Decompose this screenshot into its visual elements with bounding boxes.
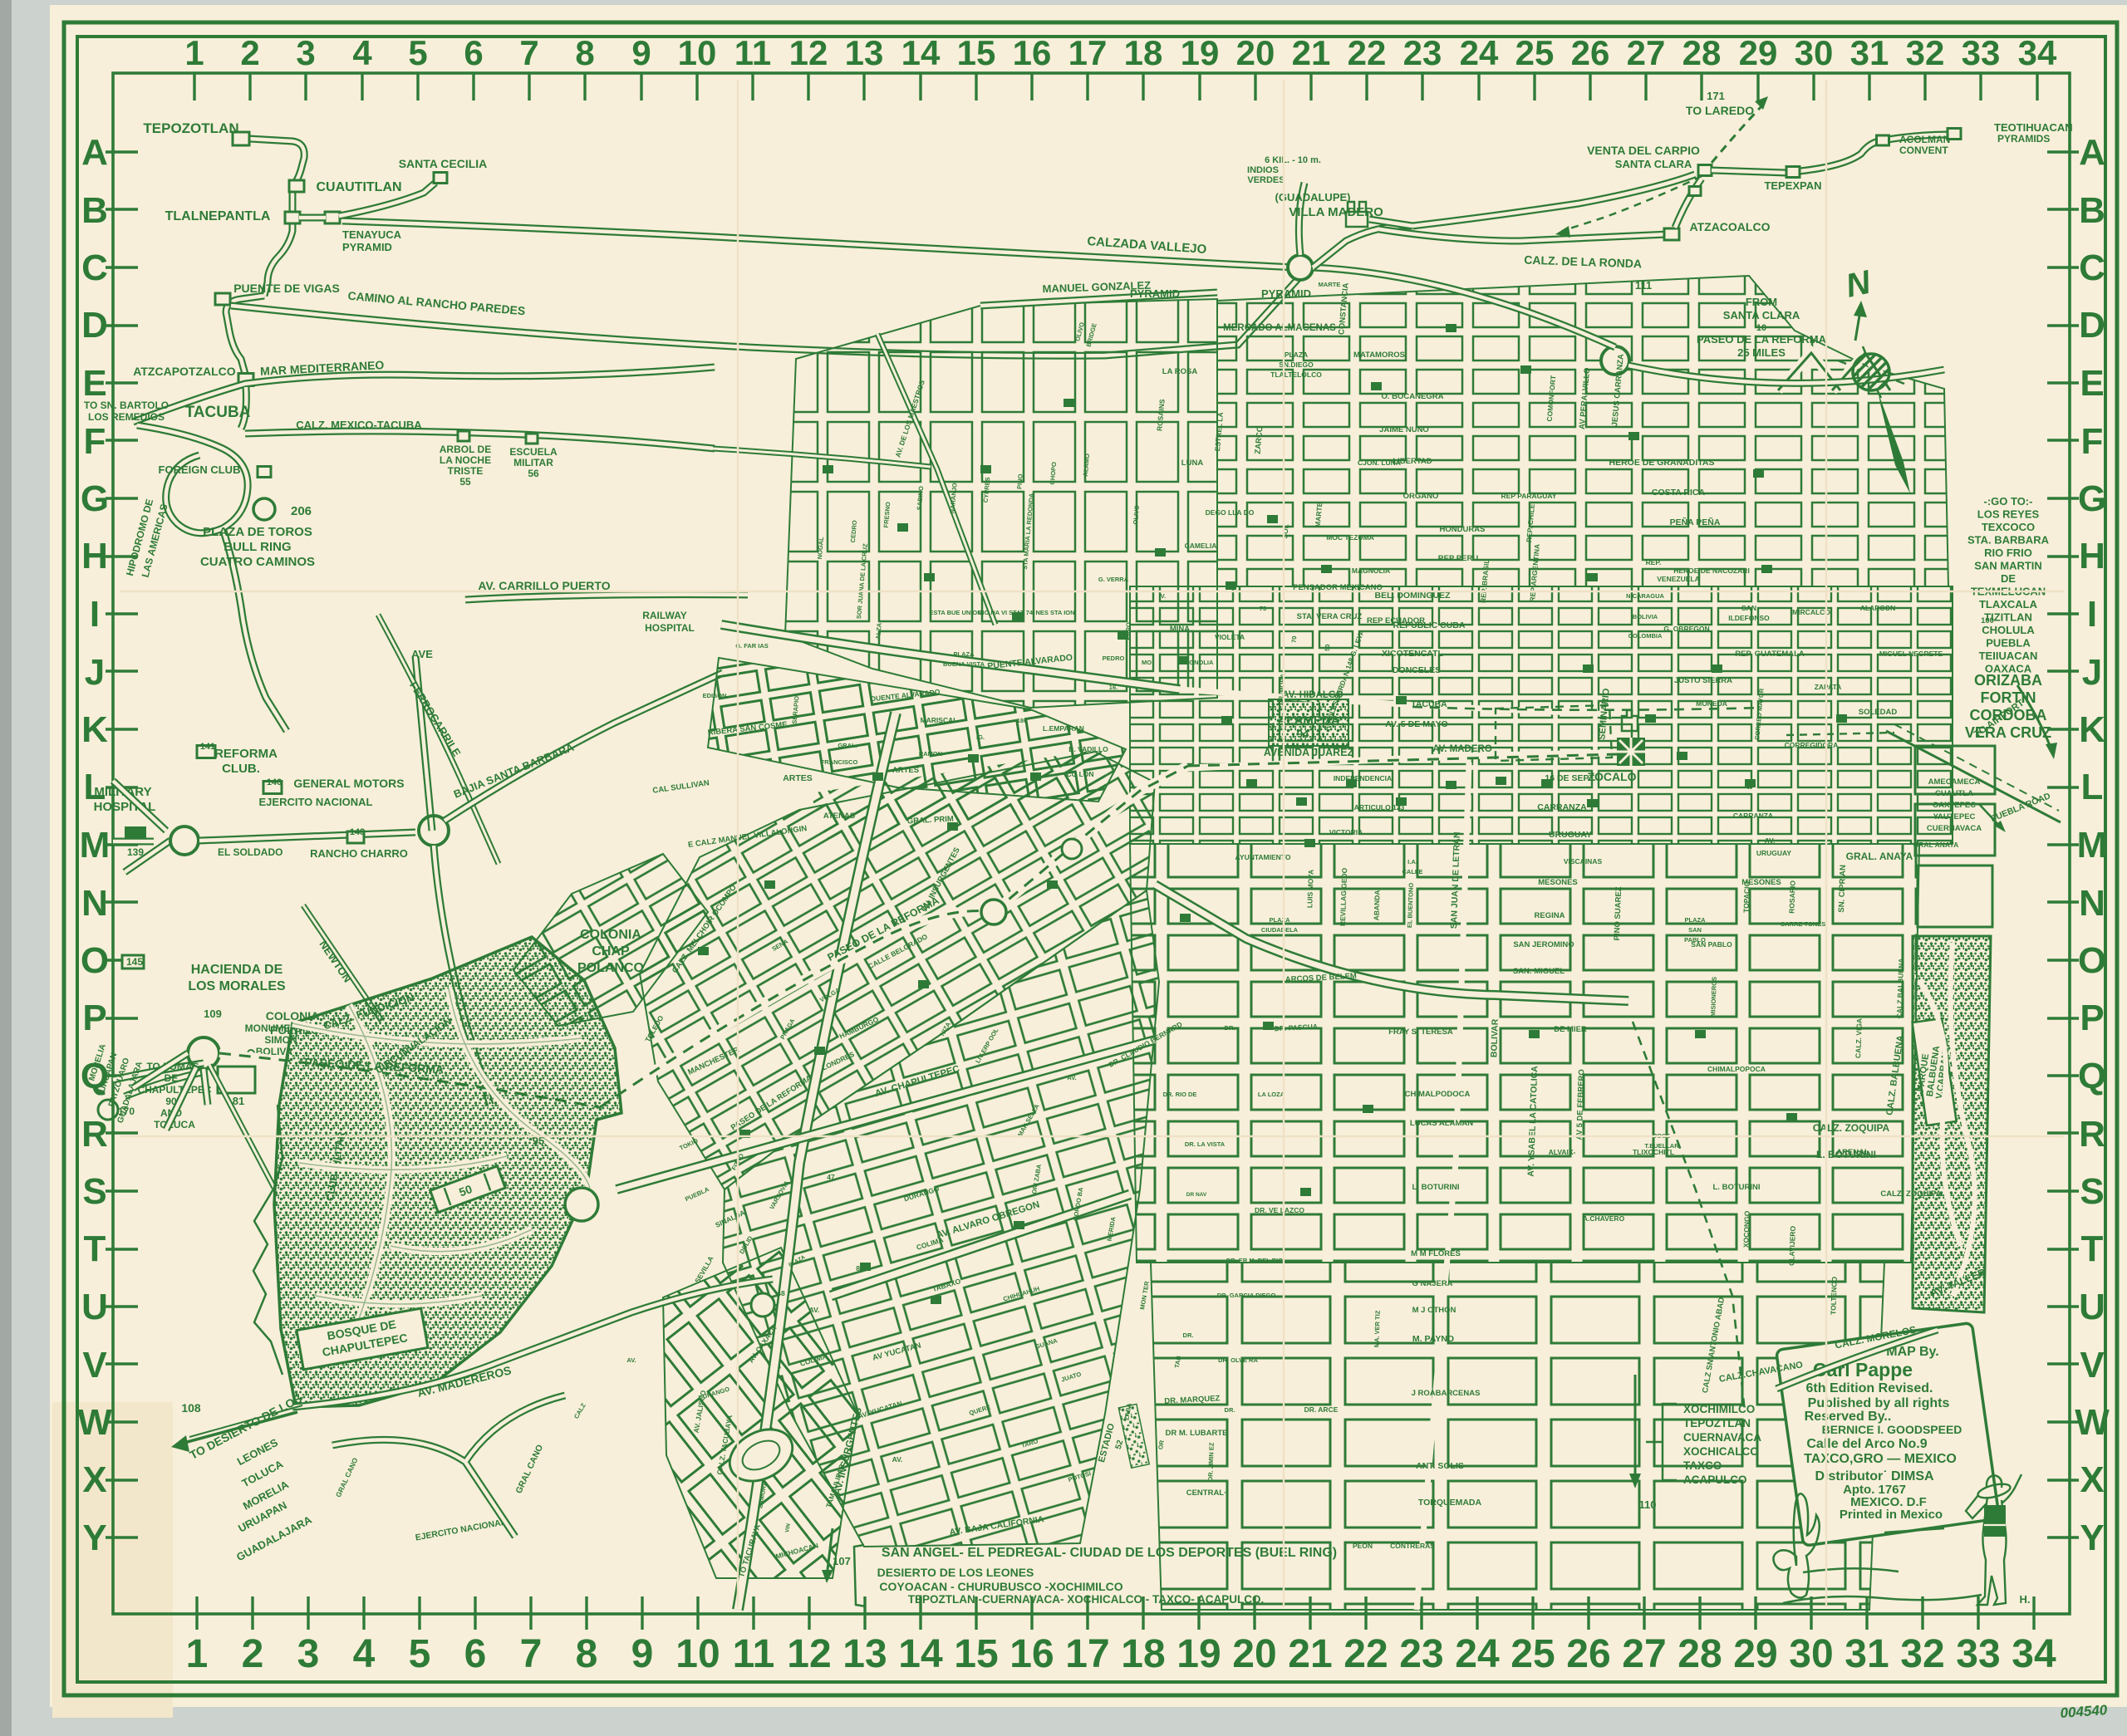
svg-text:30: 30: [1789, 1632, 1833, 1676]
svg-text:ACOLMAN: ACOLMAN: [1899, 134, 1950, 145]
svg-text:ORIZABA: ORIZABA: [1974, 672, 2042, 689]
svg-text:LOS REMEDIOS: LOS REMEDIOS: [88, 411, 165, 423]
svg-text:DR. JIMIN EZ: DR. JIMIN EZ: [1206, 1442, 1216, 1481]
svg-text:BUENA VISTA: BUENA VISTA: [943, 660, 985, 668]
svg-text:73: 73: [1260, 605, 1266, 612]
svg-text:26: 26: [1571, 33, 1610, 72]
svg-text:DR. ARCE: DR. ARCE: [1304, 1405, 1339, 1414]
svg-text:AV. 5 DE MAYO: AV. 5 DE MAYO: [1385, 719, 1447, 729]
svg-text:DE: DE: [165, 1072, 179, 1084]
svg-text:HACIENDA DE: HACIENDA DE: [191, 963, 283, 977]
svg-text:A: A: [2079, 132, 2105, 173]
svg-text:SANTA CLARA: SANTA CLARA: [1723, 309, 1800, 321]
svg-text:10: 10: [1756, 323, 1766, 333]
svg-text:PINO: PINO: [1015, 473, 1024, 489]
svg-text:CHAPULTEPEC: CHAPULTEPEC: [137, 1084, 211, 1096]
svg-text:CALZ. MEXICO-TACUBA: CALZ. MEXICO-TACUBA: [296, 419, 422, 431]
svg-text:HONDURAS: HONDURAS: [1440, 525, 1486, 534]
svg-text:ESCUELA: ESCUELA: [509, 446, 558, 458]
svg-text:108: 108: [181, 1401, 201, 1415]
svg-text:CARRANZA: CARRANZA: [1537, 802, 1587, 812]
svg-text:CARRE TONES: CARRE TONES: [1781, 920, 1825, 928]
svg-text:21: 21: [1292, 33, 1331, 72]
svg-text:CONTRERAS: CONTRERAS: [1390, 1542, 1435, 1550]
svg-text:ANT. SOLIS: ANT. SOLIS: [1416, 1461, 1464, 1471]
svg-text:AVE: AVE: [411, 648, 433, 660]
svg-text:RANCHO CHARRO: RANCHO CHARRO: [310, 847, 408, 860]
svg-text:PYRAMID: PYRAMID: [1130, 287, 1180, 300]
svg-text:25: 25: [1511, 1632, 1555, 1676]
svg-text:3: 3: [296, 33, 315, 72]
svg-text:AYUNTAMIENTO: AYUNTAMIENTO: [1235, 853, 1291, 861]
svg-text:ORGANO: ORGANO: [1403, 492, 1439, 501]
svg-text:MESONES: MESONES: [1741, 878, 1781, 887]
svg-text:TACUBA: TACUBA: [185, 404, 251, 421]
svg-text:T: T: [84, 1228, 106, 1269]
svg-text:6: 6: [464, 33, 483, 72]
svg-text:ZAPATA: ZAPATA: [1815, 683, 1842, 691]
svg-text:27: 27: [1622, 1632, 1666, 1676]
svg-text:ATENAS: ATENAS: [823, 812, 855, 821]
svg-text:PLAZA: PLAZA: [1685, 916, 1707, 924]
svg-text:17: 17: [1065, 1632, 1109, 1676]
svg-text:XOCHICALCO: XOCHICALCO: [1683, 1445, 1759, 1458]
svg-text:VENEZUELA: VENEZUELA: [1657, 575, 1699, 583]
svg-text:DR.: DR.: [1183, 1331, 1194, 1339]
svg-text:M. PAYNO: M. PAYNO: [1412, 1334, 1454, 1344]
svg-text:8: 8: [575, 33, 594, 72]
svg-text:L. BOTURINI: L. BOTURINI: [1713, 1183, 1761, 1192]
svg-text:S: S: [82, 1171, 106, 1212]
svg-text:CALZ. VIGA: CALZ. VIGA: [1854, 1018, 1864, 1058]
svg-text:18: 18: [1121, 1632, 1165, 1676]
svg-text:EJERCITO NACIONAL: EJERCITO NACIONAL: [259, 796, 373, 808]
svg-text:ESTA BUE UNION: ESTA BUE UNION: [929, 609, 981, 616]
svg-text:PASEO DE LA REFORMA: PASEO DE LA REFORMA: [1697, 333, 1827, 346]
svg-text:48: 48: [777, 1289, 785, 1297]
svg-text:CONVENT: CONVENT: [1899, 145, 1948, 156]
svg-text:A.CHAVERO: A.CHAVERO: [1583, 1214, 1625, 1223]
svg-text:TEXCOCO: TEXCOCO: [1982, 521, 2035, 533]
svg-text:REP. GUATEMALA: REP. GUATEMALA: [1735, 650, 1805, 659]
svg-text:URUGUAY: URUGUAY: [1549, 830, 1592, 840]
svg-text:-:GO TO:-: -:GO TO:-: [1984, 495, 2033, 508]
svg-text:DE MIER: DE MIER: [1554, 1025, 1587, 1034]
svg-text:J: J: [2082, 652, 2102, 693]
svg-text:13: 13: [845, 33, 884, 72]
svg-text:M: M: [2077, 825, 2108, 866]
svg-text:4: 4: [353, 1632, 376, 1676]
svg-text:MARISCAL: MARISCAL: [921, 716, 958, 724]
svg-text:W: W: [2075, 1402, 2110, 1443]
svg-text:PEON: PEON: [1353, 1542, 1373, 1550]
svg-text:HOSPITAL: HOSPITAL: [645, 622, 695, 634]
svg-text:TO LAREDO: TO LAREDO: [1686, 104, 1754, 117]
svg-text:ALARCON: ALARCON: [1860, 604, 1896, 612]
svg-text:6th Edition Revised.: 6th Edition Revised.: [1806, 1381, 1933, 1395]
svg-text:70: 70: [1290, 635, 1299, 643]
svg-text:MERCADO ALMACENAS: MERCADO ALMACENAS: [1223, 323, 1336, 333]
svg-text:O. BOCANEGRA: O. BOCANEGRA: [1382, 392, 1444, 401]
svg-text:MIRCALCO: MIRCALCO: [1792, 608, 1830, 616]
svg-text:IG.: IG.: [976, 733, 985, 741]
svg-text:T: T: [2081, 1228, 2104, 1269]
svg-text:DR M. LUBARTE: DR M. LUBARTE: [1166, 1429, 1228, 1438]
svg-text:AV.: AV.: [809, 1306, 820, 1314]
svg-text:16: 16: [1009, 1632, 1054, 1676]
svg-text:ARENAL: ARENAL: [1836, 1148, 1869, 1157]
svg-text:COLOMBIA: COLOMBIA: [1628, 632, 1663, 640]
svg-text:INDIOS: INDIOS: [1247, 165, 1279, 175]
svg-text:31: 31: [1850, 33, 1889, 72]
svg-text:D: D: [81, 305, 108, 346]
svg-text:TAXCO: TAXCO: [1683, 1459, 1722, 1472]
svg-text:HEROE DE NACOZARI: HEROE DE NACOZARI: [1673, 566, 1750, 575]
svg-text:AVENIDA JUAREZ: AVENIDA JUAREZ: [1264, 747, 1354, 758]
svg-text:EL BUENTONO: EL BUENTONO: [1406, 882, 1415, 928]
svg-text:1: 1: [186, 1632, 209, 1676]
svg-text:94: 94: [1297, 728, 1309, 740]
svg-text:28: 28: [1678, 1632, 1722, 1676]
svg-text:Y: Y: [2080, 1518, 2104, 1558]
svg-text:206: 206: [291, 504, 312, 518]
svg-text:DONCELES: DONCELES: [1393, 665, 1441, 675]
svg-text:H.: H.: [2020, 1593, 2031, 1606]
svg-text:PYRAMID: PYRAMID: [342, 241, 392, 253]
svg-text:23: 23: [1399, 1632, 1443, 1676]
svg-text:(GUADALUPE): (GUADALUPE): [1275, 191, 1351, 204]
svg-text:I: I: [90, 594, 100, 635]
svg-text:X: X: [82, 1459, 106, 1500]
svg-text:8: 8: [576, 1632, 598, 1676]
svg-text:VICTORIA: VICTORIA: [1329, 828, 1363, 836]
svg-text:2: 2: [240, 33, 259, 72]
svg-text:VILLA MADERO: VILLA MADERO: [1289, 205, 1383, 219]
svg-text:COSTA RICA: COSTA RICA: [1652, 488, 1706, 498]
svg-text:SANTA CLARA: SANTA CLARA: [1615, 158, 1692, 170]
svg-text:STA. VERA CRUZ: STA. VERA CRUZ: [1297, 612, 1363, 621]
svg-text:PEÑA PEÑA: PEÑA PEÑA: [1670, 517, 1721, 527]
svg-text:LUIS MOYA: LUIS MOYA: [1305, 870, 1315, 909]
svg-text:10: 10: [678, 33, 717, 72]
svg-text:M J OTHON: M J OTHON: [1412, 1306, 1456, 1315]
svg-text:109: 109: [204, 1008, 222, 1020]
svg-text:CARRANZA: CARRANZA: [1733, 812, 1773, 820]
svg-text:SAN MARTIN: SAN MARTIN: [1974, 560, 2042, 572]
svg-text:MINA: MINA: [1170, 625, 1190, 634]
svg-text:TACUBA: TACUBA: [1411, 699, 1447, 709]
svg-text:DR. OLVE RA: DR. OLVE RA: [1218, 1356, 1258, 1364]
svg-text:28: 28: [1682, 33, 1722, 72]
svg-text:7: 7: [520, 1632, 543, 1676]
svg-text:Calle del Arco No.9: Calle del Arco No.9: [1806, 1437, 1927, 1451]
svg-text:X: X: [2080, 1459, 2104, 1500]
svg-text:MA. VER TIZ: MA. VER TIZ: [1373, 1310, 1382, 1347]
svg-text:LOS MORALES: LOS MORALES: [188, 979, 286, 993]
svg-text:AV. CARRILLO PUERTO: AV. CARRILLO PUERTO: [478, 579, 610, 592]
svg-text:MONEDA: MONEDA: [1696, 699, 1727, 708]
svg-text:EL SOLDADO: EL SOLDADO: [218, 846, 282, 858]
svg-text:180: 180: [1017, 717, 1028, 724]
svg-text:SAN JEROMINO: SAN JEROMINO: [1513, 940, 1574, 949]
svg-text:CUATRO CAMINOS: CUATRO CAMINOS: [200, 555, 315, 569]
svg-text:MOC TEZUMA: MOC TEZUMA: [1326, 533, 1374, 542]
svg-text:Reserved By..: Reserved By..: [1805, 1410, 1892, 1424]
svg-text:DESIERTO DE LOS LEONES: DESIERTO DE LOS LEONES: [877, 1566, 1034, 1579]
svg-text:11: 11: [734, 33, 771, 72]
svg-text:DR.: DR.: [1225, 1406, 1235, 1414]
svg-text:S: S: [2080, 1171, 2104, 1212]
svg-text:29: 29: [1739, 33, 1778, 72]
svg-text:L. BOTURINI: L. BOTURINI: [1412, 1183, 1460, 1192]
svg-text:DR. RIO DE: DR. RIO DE: [1163, 1091, 1197, 1098]
svg-text:9: 9: [631, 33, 651, 72]
svg-text:56: 56: [528, 468, 539, 479]
svg-text:BOLIVAR: BOLIVAR: [1489, 1018, 1501, 1057]
svg-text:NES STA ION: NES STA ION: [1035, 609, 1074, 616]
svg-text:F: F: [84, 421, 106, 462]
svg-text:RAMON: RAMON: [919, 750, 942, 758]
svg-text:ABANDA: ABANDA: [1372, 890, 1381, 920]
svg-text:5: 5: [408, 33, 427, 72]
svg-text:XOCHIMILCO: XOCHIMILCO: [1683, 1403, 1755, 1415]
svg-text:Q: Q: [2078, 1056, 2106, 1096]
svg-text:DEGO LLA DO: DEGO LLA DO: [1206, 508, 1255, 517]
svg-text:TORQUEMADA: TORQUEMADA: [1418, 1498, 1482, 1508]
svg-text:19: 19: [1181, 33, 1220, 72]
svg-text:AV.: AV.: [626, 1356, 636, 1364]
svg-text:16 DE SEPT.: 16 DE SEPT.: [1545, 773, 1595, 783]
svg-text:MISIONEROS: MISIONEROS: [1709, 977, 1718, 1017]
svg-text:21: 21: [1288, 1632, 1332, 1676]
svg-text:E: E: [82, 363, 106, 404]
svg-text:CO LON: CO LON: [1066, 770, 1093, 778]
svg-text:JUSTO SIERRA: JUSTO SIERRA: [1674, 676, 1732, 685]
svg-text:ATZCAPOTZALCO: ATZCAPOTZALCO: [133, 365, 235, 378]
svg-text:REGINA: REGINA: [1535, 911, 1565, 920]
svg-text:P: P: [82, 998, 106, 1038]
svg-text:H: H: [81, 536, 108, 576]
svg-text:ARTES: ARTES: [892, 766, 919, 775]
svg-text:RAILWAY: RAILWAY: [642, 610, 687, 621]
svg-text:I.A.: I.A.: [1407, 858, 1417, 866]
svg-text:FRANCISCO: FRANCISCO: [821, 758, 858, 766]
svg-text:H: H: [2079, 536, 2105, 576]
svg-text:RIO FRIO: RIO FRIO: [1984, 547, 2032, 559]
svg-text:CUERNAVACA: CUERNAVACA: [1683, 1431, 1761, 1444]
svg-text:22: 22: [1343, 1632, 1388, 1676]
svg-text:G: G: [2078, 478, 2106, 519]
svg-text:18: 18: [1124, 33, 1163, 72]
svg-text:TEPOZTLAN: TEPOZTLAN: [1683, 1417, 1751, 1430]
svg-text:TOLTENCO: TOLTENCO: [1829, 1276, 1839, 1315]
svg-text:K: K: [2079, 709, 2105, 750]
svg-text:CUAUTITLAN: CUAUTITLAN: [316, 180, 401, 194]
svg-text:A: A: [81, 132, 108, 173]
svg-text:ARTES: ARTES: [783, 773, 813, 783]
svg-text:23: 23: [1403, 33, 1442, 72]
svg-text:6: 6: [464, 1632, 487, 1676]
svg-text:LOS REYES: LOS REYES: [1977, 508, 2040, 521]
svg-text:CHIMALPODOCA: CHIMALPODOCA: [1405, 1090, 1471, 1099]
svg-text:CUAUTLA: CUAUTLA: [1935, 789, 1973, 798]
svg-text:SOL: SOL: [1280, 524, 1289, 539]
svg-text:14: 14: [898, 1632, 943, 1676]
svg-text:VIOLETA: VIOLETA: [1215, 633, 1245, 641]
svg-text:170: 170: [118, 1106, 135, 1117]
svg-text:CHOLULA: CHOLULA: [1982, 624, 2035, 636]
svg-text:V.: V.: [1161, 592, 1166, 600]
svg-text:107: 107: [833, 1555, 851, 1567]
svg-text:FOREIGN CLUB: FOREIGN CLUB: [159, 463, 241, 476]
svg-text:10: 10: [675, 1632, 720, 1676]
svg-text:HEROE DE GRANADITAS: HEROE DE GRANADITAS: [1609, 458, 1715, 468]
svg-text:30: 30: [1795, 33, 1834, 72]
svg-text:GRAL.: GRAL.: [838, 742, 857, 749]
svg-text:1: 1: [184, 33, 204, 72]
svg-text:NICARAGUA: NICARAGUA: [1626, 592, 1664, 600]
svg-text:M: M: [80, 825, 111, 866]
svg-text:I: I: [2087, 594, 2097, 635]
svg-text:15: 15: [957, 33, 996, 72]
svg-text:6 KIL. - 10 m.: 6 KIL. - 10 m.: [1265, 155, 1321, 165]
svg-text:Y: Y: [82, 1518, 106, 1558]
svg-text:REP PARAGUAY: REP PARAGUAY: [1501, 492, 1557, 500]
svg-text:110: 110: [1639, 1498, 1657, 1511]
svg-text:LUCAS ALAMAN: LUCAS ALAMAN: [1410, 1119, 1473, 1128]
svg-text:SAN: SAN: [1741, 604, 1756, 612]
svg-text:G NAJERA: G NAJERA: [1412, 1279, 1452, 1288]
svg-text:DR.: DR.: [1225, 1024, 1235, 1032]
svg-text:FROM: FROM: [1746, 296, 1777, 308]
svg-text:CENTRAL·: CENTRAL·: [1186, 1488, 1227, 1498]
svg-text:LA NOCHE: LA NOCHE: [440, 454, 491, 466]
svg-text:VERDES: VERDES: [1247, 175, 1285, 185]
svg-text:81: 81: [233, 1095, 244, 1107]
svg-text:AV.: AV.: [1067, 1074, 1076, 1081]
svg-text:PLAZA DE TOROS: PLAZA DE TOROS: [203, 525, 312, 539]
svg-text:CUERNAVACA: CUERNAVACA: [1927, 824, 1982, 833]
svg-text:29: 29: [1733, 1632, 1777, 1676]
svg-text:17: 17: [1068, 33, 1108, 72]
svg-text:FRAY S. TERESA: FRAY S. TERESA: [1388, 1027, 1453, 1037]
svg-text:ATZACOALCO: ATZACOALCO: [1690, 220, 1771, 233]
svg-text:OAXTEPEC: OAXTEPEC: [1933, 801, 1976, 810]
svg-text:SAN ANGEL- EL PEDREGAL- CIUDAD: SAN ANGEL- EL PEDREGAL- CIUDAD DE LOS DE…: [882, 1546, 1337, 1560]
svg-text:20: 20: [1232, 1632, 1276, 1676]
svg-text:K: K: [81, 709, 108, 750]
svg-text:CLUB.: CLUB.: [222, 762, 260, 776]
svg-text:CJON. LUNA: CJON. LUNA: [1358, 459, 1401, 467]
svg-text:CAMELIA: CAMELIA: [1185, 542, 1217, 550]
svg-text:24: 24: [1455, 1632, 1500, 1676]
svg-text:B: B: [81, 190, 108, 231]
svg-text:PINO SUAREZ: PINO SUAREZ: [1613, 886, 1623, 940]
svg-text:111: 111: [1635, 279, 1652, 292]
svg-text:YAUTEPEC: YAUTEPEC: [1933, 812, 1976, 821]
svg-text:24: 24: [1460, 33, 1499, 72]
svg-text:9: 9: [631, 1632, 654, 1676]
svg-text:CHIMALPOPOCA: CHIMALPOPOCA: [1707, 1065, 1766, 1073]
svg-text:26: 26: [1566, 1632, 1610, 1676]
svg-text:14: 14: [901, 33, 941, 72]
svg-text:PLAZA: PLAZA: [954, 650, 975, 658]
svg-text:ARBOL DE: ARBOL DE: [440, 444, 491, 455]
svg-text:55: 55: [459, 476, 471, 488]
svg-text:INDEPENDENCIA: INDEPENDENCIA: [1334, 774, 1392, 782]
svg-text:G. FAR IAS: G. FAR IAS: [735, 642, 769, 650]
svg-text:MARTE: MARTE: [1319, 281, 1341, 288]
svg-text:VISCAINAS: VISCAINAS: [1564, 857, 1603, 866]
svg-text:33: 33: [1962, 33, 2001, 72]
svg-text:O: O: [81, 940, 109, 981]
svg-text:CLAVIJERO: CLAVIJERO: [1787, 1225, 1797, 1266]
svg-text:141: 141: [200, 742, 215, 752]
svg-text:PUENTE DE VIGAS: PUENTE DE VIGAS: [233, 282, 340, 295]
svg-text:16.: 16.: [1109, 684, 1118, 691]
svg-text:JAIME NUNO: JAIME NUNO: [1379, 425, 1429, 434]
svg-text:LUNA: LUNA: [1181, 459, 1204, 468]
svg-text:Published by all rights: Published by all rights: [1808, 1396, 1950, 1410]
svg-text:E: E: [2080, 363, 2104, 404]
svg-text:COYOACAN - CHURUBUSCO -XOCHI: COYOACAN - CHURUBUSCO -XOCHIMILCO: [879, 1580, 1122, 1593]
svg-text:BULL RING: BULL RING: [224, 540, 291, 554]
svg-text:25 MILES: 25 MILES: [1737, 346, 1786, 359]
svg-text:V: V: [2080, 1345, 2105, 1385]
svg-text:ROSARIO: ROSARIO: [1787, 880, 1796, 914]
svg-text:2: 2: [242, 1632, 264, 1676]
svg-text:CALZ. ZOQUIPA: CALZ. ZOQUIPA: [1813, 1122, 1890, 1134]
svg-text:19: 19: [1176, 1632, 1221, 1676]
svg-text:TIZITLAN: TIZITLAN: [1984, 611, 2032, 624]
svg-text:CALZ. ZOQUIPA: CALZ. ZOQUIPA: [1880, 1189, 1941, 1199]
svg-text:3: 3: [297, 1632, 320, 1676]
svg-text:004540: 004540: [2060, 1702, 2108, 1721]
svg-text:O: O: [2078, 940, 2106, 981]
svg-text:LA ROSA: LA ROSA: [1162, 367, 1198, 376]
svg-text:11: 11: [733, 1632, 775, 1676]
svg-text:AV. MADERO: AV. MADERO: [1432, 744, 1492, 754]
svg-text:Printed in Mexico: Printed in Mexico: [1840, 1508, 1943, 1522]
svg-text:16: 16: [1013, 33, 1052, 72]
svg-text:M M FLORES: M M FLORES: [1411, 1249, 1461, 1258]
svg-text:BERNICE I. GOODSPEED: BERNICE I. GOODSPEED: [1822, 1423, 1962, 1436]
svg-text:CALLE: CALLE: [1402, 868, 1423, 875]
svg-text:ILDEFONSO: ILDEFONSO: [1728, 614, 1770, 622]
svg-text:V: V: [82, 1345, 107, 1385]
svg-text:N: N: [81, 883, 108, 924]
svg-text:AV.: AV.: [1765, 836, 1776, 845]
svg-text:G. VERRA: G. VERRA: [1098, 576, 1129, 583]
svg-text:TEPOZTLAN -CUERNAVACA- XOCHICA: TEPOZTLAN -CUERNAVACA- XOCHICALCO - TAXC…: [908, 1593, 1264, 1606]
svg-text:32: 32: [1900, 1632, 1944, 1676]
svg-text:ALZA: ALZA: [874, 622, 883, 640]
svg-text:B. VADILLO: B. VADILLO: [1068, 745, 1108, 753]
svg-text:12: 12: [789, 33, 828, 72]
svg-text:7: 7: [519, 33, 538, 72]
svg-text:CIO NA VI STAT 74: CIO NA VI STAT 74: [978, 609, 1034, 616]
svg-text:TEPOZOTLAN: TEPOZOTLAN: [143, 120, 238, 136]
svg-text:PLAZA: PLAZA: [1270, 916, 1291, 924]
svg-text:AV.: AV.: [892, 1455, 903, 1464]
svg-text:REFORMA: REFORMA: [214, 747, 278, 761]
svg-text:MESONES: MESONES: [1538, 878, 1578, 887]
svg-text:TLALTELOLCO: TLALTELOLCO: [1270, 370, 1322, 379]
svg-text:27: 27: [1627, 33, 1666, 72]
svg-text:LA LOZA: LA LOZA: [1258, 1091, 1285, 1098]
svg-text:URUGUAY: URUGUAY: [1756, 849, 1792, 857]
svg-text:34: 34: [2012, 1632, 2056, 1676]
